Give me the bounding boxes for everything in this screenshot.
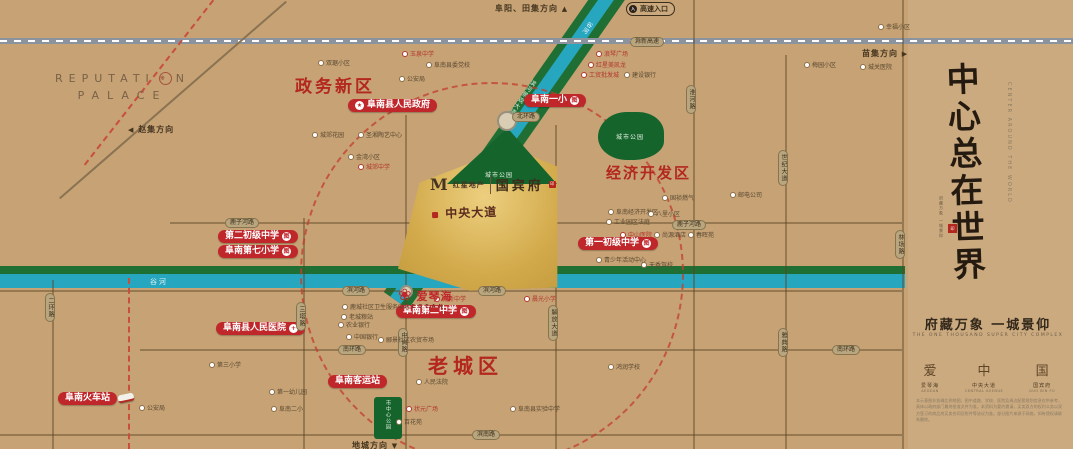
poi-dot [378, 337, 384, 343]
poi-dot [341, 314, 347, 320]
poi-label: 玉泉中学 [410, 49, 434, 58]
landmark-hospital: 阜南县人民医院 + [216, 322, 305, 335]
landmark-label: 第二初级中学 [225, 232, 279, 241]
poi-dot [346, 334, 352, 340]
product-icon: 国 [1029, 360, 1055, 379]
product-icon: 爱 [921, 360, 939, 379]
poi-dot [581, 72, 587, 78]
direction-west-label: 赵集方向 [138, 125, 174, 134]
poi-label: 邮电公司 [738, 190, 762, 199]
poi-dot [318, 60, 324, 66]
road-tag: 滨河路 [478, 286, 506, 296]
poi-label: 春晖苑 [696, 230, 714, 239]
landmark-bus-station: 阜南客运站 [328, 375, 387, 388]
poi-label: 晨光小学 [532, 294, 556, 303]
poi-dot [620, 232, 626, 238]
aegean-name: 爱琴海 [417, 290, 453, 303]
panel-tagline-en: THE ONE THOUSAND SUPER CITY COMPLEX [908, 333, 1068, 338]
poi-label: 中山医院 [628, 230, 652, 239]
central-avenue-mark: 中央大道 [432, 203, 498, 222]
emblem-icon: ❋ [159, 72, 172, 85]
train-icon [117, 392, 134, 403]
mini-caption: 府藏万象 一城景仰 [938, 196, 944, 238]
highway-entrance-label: 高速入口 [640, 4, 668, 14]
panel-tagline: 府藏万象 一城景仰 [908, 314, 1068, 333]
reputation-text-line2: PALACE [55, 89, 190, 102]
poi-label: 八里小区 [656, 209, 680, 218]
poi-label: 天香驾校 [649, 260, 673, 269]
product-aegean: 爱 爱琴海 AEGEAN [921, 360, 939, 393]
landmark-label: 阜南一小 [531, 96, 567, 105]
product-central-avenue: 中 中央大道 CENTRAL AVENUE [965, 360, 1003, 393]
poi-dot [596, 257, 602, 263]
product-name: 中央大道 [965, 382, 1003, 389]
poi-label: 幸福小区 [886, 22, 910, 31]
poi-dot [139, 405, 145, 411]
reputation-palace-logo: REPUTATI ❋ N PALACE [55, 72, 190, 102]
road-tag: 鹿子河路 [225, 218, 259, 228]
road-tag: 滁新高速 [630, 37, 664, 47]
aegean-name-en: AEGEAN [398, 304, 453, 310]
poi-label: 阜南县实验中学 [518, 404, 560, 413]
park-label: 市中心公园 [385, 400, 392, 430]
poi-label: 中国银行 [354, 332, 378, 341]
road-tag: 鹿子河路 [672, 220, 706, 230]
aegean-mark: ❀ 爱琴海 AEGEAN [398, 285, 453, 310]
seal-stamp-icon: 印 [948, 224, 957, 233]
disclaimer-text: 本示意图非准确比例地图，图中道路、学校、医院及周边配套规划信息仅供参考，具体以政… [916, 398, 1062, 424]
landmark-train-station: 阜南火车站 [58, 392, 117, 405]
road-tag: 南环路 [832, 345, 860, 355]
poi-label: 公安局 [147, 403, 165, 412]
badge-icon: 图 [282, 232, 291, 241]
poi-dot [348, 154, 354, 160]
road-shiji [785, 55, 787, 449]
poi-dot [588, 62, 594, 68]
poi-label: 百花苑 [404, 417, 422, 426]
product-name: 国宾府 [1029, 382, 1055, 389]
poi-label: 城关医院 [868, 62, 892, 71]
direction-south: 地城方向 ▼ [352, 440, 398, 449]
poi-dot [312, 132, 318, 138]
poi-dot [416, 379, 422, 385]
brand-slogan: 中心总在世界 [941, 61, 985, 284]
project-name: 国宾府 [496, 175, 544, 194]
badge-icon: 图 [642, 239, 651, 248]
landmark-label: 阜南县人民政府 [367, 101, 430, 110]
poi-label: 梅园小区 [812, 60, 836, 69]
landmark-government: ★ 阜南县人民政府 [348, 99, 437, 112]
poi-label: 第三小学 [217, 360, 241, 369]
brand-slogan-en: CENTER AROUND THE WORLD [1006, 82, 1012, 204]
road-linchang [902, 0, 904, 449]
poi-dot [654, 232, 660, 238]
arrow-left-icon: ◀ [128, 126, 134, 134]
star-icon: ★ [355, 101, 364, 110]
landmark-no2-middle: 第二初级中学 图 [218, 230, 298, 243]
poi-dot [269, 389, 275, 395]
poi-dot [396, 419, 402, 425]
road-tag: 世纪大道 [778, 150, 788, 186]
landmark-yixiao: 阜南一小 图 [524, 94, 586, 107]
poi-label: 工贸批发城 [589, 70, 619, 79]
poi-dot [688, 232, 694, 238]
road-tag: 南环路 [338, 345, 366, 355]
poi-label: 尚源酒店 [662, 230, 686, 239]
reputation-text: N [176, 72, 190, 85]
product-name-en: GUO BIN FU [1029, 389, 1055, 393]
product-name-en: AEGEAN [921, 389, 939, 393]
product-name-en: CENTRAL AVENUE [965, 389, 1003, 393]
poi-label: 公安局 [407, 74, 425, 83]
arrow-right-icon: ▶ [902, 50, 908, 58]
direction-west: ◀ 赵集方向 [128, 124, 174, 135]
poi-dot [878, 24, 884, 30]
poi-label: 国祯燃气 [670, 193, 694, 202]
poi-dot [406, 406, 412, 412]
landmark-label: 阜南客运站 [335, 377, 380, 386]
landmark-label: 阜南县人民医院 [223, 324, 286, 333]
poi-label: 金湾小区 [356, 152, 380, 161]
road-tag: 北环路 [512, 112, 540, 122]
river-name: 谷河 [150, 277, 168, 287]
road-tag: 淮河路 [686, 85, 696, 114]
road-tag: 滨南路 [472, 430, 500, 440]
location-map: 滨河景观大道 谷河 谷河 城市公园 城市公园 市中心公园 阜阳、田集方向 ▲ 入… [0, 0, 1073, 449]
badge-icon: 图 [460, 307, 469, 316]
flower-icon: ❀ [398, 285, 411, 304]
developer-logo: M 红星地产 国宾府 印 [430, 175, 556, 194]
poi-dot [624, 72, 630, 78]
poi-dot [399, 76, 405, 82]
road-tag: 二环路 [45, 293, 55, 322]
poi-dot [209, 362, 215, 368]
badge-icon: 图 [282, 247, 291, 256]
seal-icon: 印 [549, 181, 556, 188]
landmark-no7-primary: 阜南第七小学 图 [218, 245, 298, 258]
direction-east: 苗集方向 ▶ [862, 48, 908, 59]
poi-label: 农业银行 [346, 320, 370, 329]
highway-entrance-tag: 入 高速入口 [626, 2, 675, 16]
direction-east-label: 苗集方向 [862, 49, 898, 58]
poi-label: 郦景社区农贸市场 [386, 335, 434, 344]
poi-label: 建设银行 [632, 70, 656, 79]
poi-dot [358, 132, 364, 138]
product-name: 爱琴海 [921, 382, 939, 389]
poi-label: 城郊中学 [366, 162, 390, 171]
district-laocheng: 老城区 [428, 350, 503, 379]
poi-label: 第一幼儿园 [277, 387, 307, 396]
landmark-label: 阜南第七小学 [225, 247, 279, 256]
planned-railway [128, 278, 130, 449]
developer-name: 红星地产 [453, 180, 485, 190]
poi-label: 圣湘陶艺中心 [366, 130, 402, 139]
product-icon: 中 [965, 360, 1003, 379]
poi-dot [524, 296, 530, 302]
product-guobinfu: 国 国宾府 GUO BIN FU [1029, 360, 1055, 393]
poi-label: 红星美凯龙 [596, 60, 626, 69]
road-tag: 滨河路 [342, 286, 370, 296]
arrow-down-icon: ▼ [392, 442, 398, 449]
poi-dot [608, 209, 614, 215]
poi-dot [608, 364, 614, 370]
direction-north-label: 阜阳、田集方向 [495, 4, 558, 13]
m-mark: M [430, 177, 448, 193]
interchange-icon: 入 [629, 5, 637, 13]
poi-label: 工业园区法庭 [614, 217, 650, 226]
poi-label: 青少年活动中心 [604, 255, 646, 264]
poi-label: 人民法院 [424, 377, 448, 386]
poi-label: 阜南县委党校 [434, 60, 470, 69]
road-tag: 林场路 [895, 230, 905, 259]
poi-dot [606, 219, 612, 225]
expressway-dashes [0, 40, 1073, 42]
seal-icon [432, 211, 438, 217]
district-jingji: 经济开发区 [606, 162, 691, 183]
poi-dot [426, 62, 432, 68]
poi-dot [641, 262, 647, 268]
poi-dot [860, 64, 866, 70]
landmark-label: 第一初级中学 [585, 239, 639, 248]
expressway-line [0, 38, 1073, 44]
road-tag: 解放大道 [548, 305, 558, 341]
direction-north: 阜阳、田集方向 ▲ [495, 3, 568, 14]
poi-label: 阜南二小 [279, 404, 303, 413]
poi-label: 状元广场 [414, 404, 438, 413]
road-tag: 三塔路 [296, 302, 306, 331]
poi-dot [648, 211, 654, 217]
poi-dot [730, 192, 736, 198]
poi-label: 鸿润学校 [616, 362, 640, 371]
poi-dot [662, 195, 668, 201]
poi-dot [596, 51, 602, 57]
direction-south-label: 地城方向 [352, 441, 388, 449]
reputation-text: REPUTATI [55, 72, 155, 85]
park-label: 城市公园 [616, 132, 644, 141]
poi-dot [358, 164, 364, 170]
poi-dot [402, 51, 408, 57]
badge-icon: 图 [570, 96, 579, 105]
district-zhengwu: 政务新区 [295, 72, 375, 97]
product-logos: 爱 爱琴海 AEGEAN 中 中央大道 CENTRAL AVENUE 国 国宾府… [908, 360, 1068, 393]
poi-dot [510, 406, 516, 412]
park-blob: 城市公园 [598, 112, 664, 160]
poi-label: 双琚小区 [326, 58, 350, 67]
poi-dot [338, 322, 344, 328]
landmark-label: 阜南火车站 [65, 394, 110, 403]
poi-dot [342, 304, 348, 310]
poi-label: 城郊花园 [320, 130, 344, 139]
poi-dot [271, 406, 277, 412]
central-avenue-label: 中央大道 [445, 205, 497, 221]
logo-divider [490, 176, 491, 194]
arrow-up-icon: ▲ [562, 5, 568, 13]
poi-dot [804, 62, 810, 68]
poi-label: 浪琴广场 [604, 49, 628, 58]
road-tag: 雅典路 [778, 328, 788, 357]
